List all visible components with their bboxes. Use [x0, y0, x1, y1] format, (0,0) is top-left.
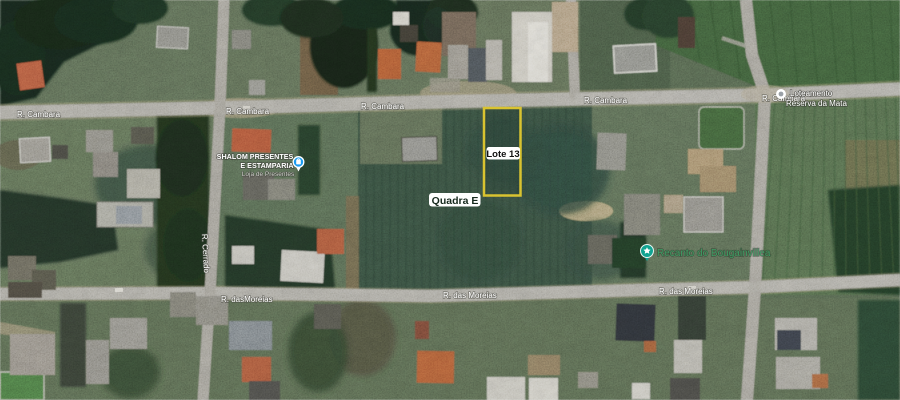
svg-text:SHALOM PRESENTES: SHALOM PRESENTES [217, 152, 294, 161]
svg-text:R. dasMoreias: R. dasMoreias [221, 295, 273, 304]
svg-text:R. Cambara: R. Cambara [226, 107, 270, 116]
svg-text:Quadra E: Quadra E [432, 195, 479, 207]
svg-text:Recanto do Bougainvillea: Recanto do Bougainvillea [657, 248, 771, 259]
svg-text:R. das Moreias: R. das Moreias [659, 287, 713, 296]
svg-text:R. Cambara: R. Cambara [361, 102, 405, 111]
svg-text:R. das Moreias: R. das Moreias [443, 291, 497, 300]
svg-text:Reserva da Mata: Reserva da Mata [786, 99, 847, 108]
svg-text:E ESTAMPARIA: E ESTAMPARIA [240, 161, 293, 170]
svg-text:Loteamento: Loteamento [790, 89, 833, 98]
svg-text:Loja de Presentes: Loja de Presentes [242, 171, 295, 178]
svg-text:R. Cambara: R. Cambara [584, 96, 628, 105]
svg-text:R. Cambara: R. Cambara [17, 110, 61, 119]
svg-text:Lote 13: Lote 13 [486, 149, 519, 160]
